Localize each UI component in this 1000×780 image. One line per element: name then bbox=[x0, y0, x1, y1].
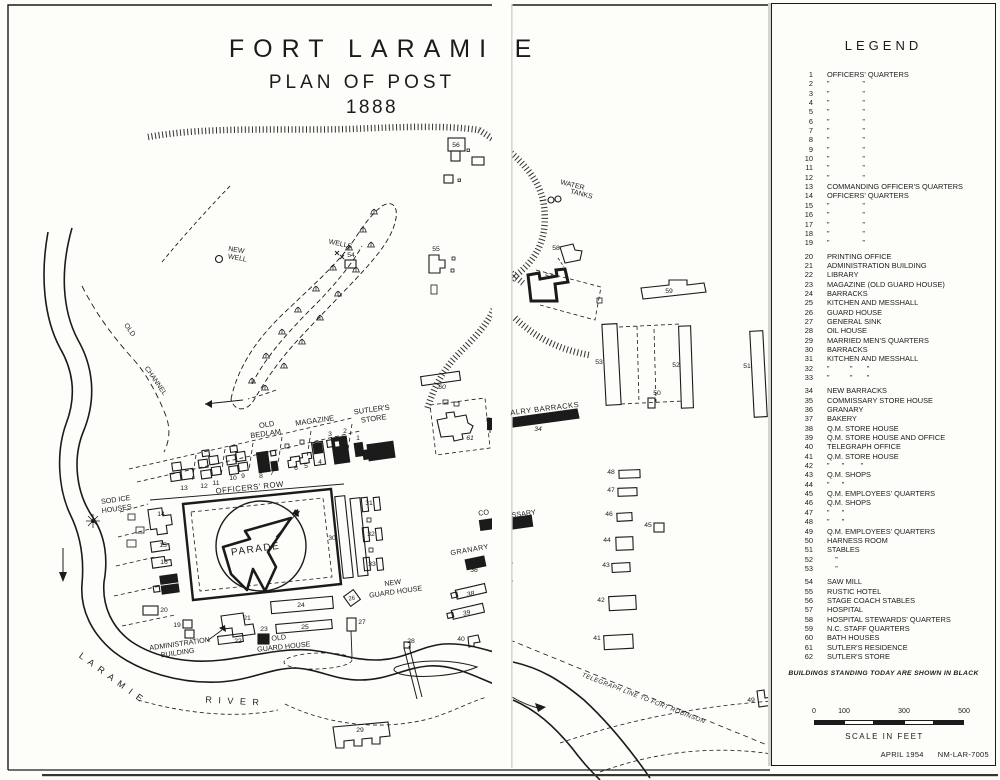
map-text-num-6: 6 bbox=[294, 465, 298, 472]
legend-row-label: ” bbox=[827, 555, 838, 564]
legend-row-label: SUTLER'S STORE bbox=[827, 652, 890, 661]
legend-row-number: 39 bbox=[794, 433, 813, 442]
legend-row-46: 46Q.M. SHOPS bbox=[794, 498, 995, 507]
legend-row-label: ” ” bbox=[827, 508, 844, 517]
legend-row-number: 52 bbox=[794, 555, 813, 564]
legend-row-32: 32” ” ” bbox=[794, 364, 995, 373]
map-text-num-1: 1 bbox=[356, 435, 360, 442]
legend-row-number: 38 bbox=[794, 424, 813, 433]
legend-row-51: 51STABLES bbox=[794, 545, 995, 554]
legend-sheet: LEGEND 1OFFICERS' QUARTERS2” ”3” ”4” ”5”… bbox=[771, 3, 996, 766]
scale-tick-0: 0 bbox=[812, 708, 816, 715]
legend-row-label: ” ” bbox=[827, 210, 865, 219]
legend-row-label: Q.M. STORE HOUSE bbox=[827, 452, 899, 461]
legend-row-number: 31 bbox=[794, 354, 813, 363]
legend-row-label: HOSPITAL bbox=[827, 605, 863, 614]
legend-row-label: KITCHEN AND MESSHALL bbox=[827, 298, 918, 307]
map-text-num-54: 54 bbox=[347, 252, 355, 259]
legend-row-36: 36GRANARY bbox=[794, 405, 995, 414]
legend-row-55: 55RUSTIC HOTEL bbox=[794, 587, 995, 596]
legend-row-number: 9 bbox=[794, 145, 813, 154]
legend-row-20: 20PRINTING OFFICE bbox=[794, 252, 995, 261]
legend-row-number: 20 bbox=[794, 252, 813, 261]
map-text-num-23: 23 bbox=[260, 626, 268, 633]
legend-row-label: ” ” bbox=[827, 238, 865, 247]
legend-row-number: 22 bbox=[794, 270, 813, 279]
legend-row-31: 31KITCHEN AND MESSHALL bbox=[794, 354, 995, 363]
legend-row-45: 45Q.M. EMPLOYEES' QUARTERS bbox=[794, 489, 995, 498]
legend-row-label: ” ” bbox=[827, 98, 865, 107]
legend-row-number: 36 bbox=[794, 405, 813, 414]
building-23-old-guard-house bbox=[258, 634, 269, 644]
map-text-num-2: 2 bbox=[343, 428, 347, 435]
map-text-num-28: 28 bbox=[407, 638, 415, 645]
legend-row-label: SAW MILL bbox=[827, 577, 862, 586]
legend-row-label: ” ” ” bbox=[827, 373, 869, 382]
legend-row-56: 56STAGE COACH STABLES bbox=[794, 596, 995, 605]
scale-segment bbox=[934, 720, 964, 725]
map-text-num-46: 46 bbox=[605, 511, 613, 518]
map-text-num-5: 5 bbox=[304, 463, 308, 470]
legend-row-label: ADMINISTRATION BUILDING bbox=[827, 261, 927, 270]
legend-row-2: 2” ” bbox=[794, 79, 995, 88]
legend-row-7: 7” ” bbox=[794, 126, 995, 135]
legend-row-label: N.C. STAFF QUARTERS bbox=[827, 624, 910, 633]
legend-row-number: 28 bbox=[794, 326, 813, 335]
legend-row-number: 42 bbox=[794, 461, 813, 470]
legend-row-12: 12” ” bbox=[794, 173, 995, 182]
legend-row-13: 13COMMANDING OFFICER'S QUARTERS bbox=[794, 182, 995, 191]
legend-row-number: 15 bbox=[794, 201, 813, 210]
legend-row-14: 14OFFICERS' QUARTERS bbox=[794, 191, 995, 200]
map-text-num-8: 8 bbox=[259, 473, 263, 480]
legend-row-53: 53 ” bbox=[794, 564, 995, 573]
legend-row-number: 58 bbox=[794, 615, 813, 624]
legend-row-38: 38Q.M. STORE HOUSE bbox=[794, 424, 995, 433]
legend-row-54: 54SAW MILL bbox=[794, 577, 995, 586]
legend-row-label: Q.M. STORE HOUSE AND OFFICE bbox=[827, 433, 945, 442]
building-1 bbox=[354, 443, 364, 457]
map-text-num-55: 55 bbox=[432, 246, 440, 253]
legend-row-label: HOSPITAL STEWARDS' QUARTERS bbox=[827, 615, 951, 624]
map-text-num-40: 40 bbox=[457, 636, 465, 643]
title-line-2: PLAN OF POST bbox=[269, 72, 455, 93]
map-text-num-7: 7 bbox=[270, 470, 274, 477]
legend-row-number: 54 bbox=[794, 577, 813, 586]
legend-row-label: MARRIED MEN'S QUARTERS bbox=[827, 336, 929, 345]
legend-row-62: 62SUTLER'S STORE bbox=[794, 652, 995, 661]
legend-row-number: 8 bbox=[794, 135, 813, 144]
legend-row-17: 17” ” bbox=[794, 220, 995, 229]
legend-row-label: OIL HOUSE bbox=[827, 326, 867, 335]
legend-row-label: ” ” bbox=[827, 229, 865, 238]
legend-row-number: 14 bbox=[794, 191, 813, 200]
legend-row-label: BARRACKS bbox=[827, 345, 868, 354]
legend-row-44: 44” ” bbox=[794, 480, 995, 489]
map-text-num-18: 18 bbox=[167, 587, 174, 593]
legend-row-number: 19 bbox=[794, 238, 813, 247]
legend-row-34: 34NEW BARRACKS bbox=[794, 386, 995, 395]
legend-row-label: MAGAZINE (OLD GUARD HOUSE) bbox=[827, 280, 945, 289]
legend-row-label: ” ” bbox=[827, 79, 865, 88]
legend-row-number: 30 bbox=[794, 345, 813, 354]
legend-row-number: 26 bbox=[794, 308, 813, 317]
map-text-num-32: 32 bbox=[367, 531, 375, 538]
map-text-num-36: 36 bbox=[470, 567, 478, 574]
map-text-num-24: 24 bbox=[297, 602, 305, 609]
legend-row-label: BARRACKS bbox=[827, 289, 868, 298]
scale-segment bbox=[874, 720, 904, 725]
legend-row-number: 13 bbox=[794, 182, 813, 191]
legend-row-label: ” ” ” bbox=[827, 461, 863, 470]
legend-row-27: 27GENERAL SINK bbox=[794, 317, 995, 326]
legend-row-number: 32 bbox=[794, 364, 813, 373]
legend-row-1: 1OFFICERS' QUARTERS bbox=[794, 70, 995, 79]
legend-row-label: ” ” bbox=[827, 89, 865, 98]
scan-seam bbox=[492, 4, 512, 768]
legend-row-number: 33 bbox=[794, 373, 813, 382]
map-text-num-16: 16 bbox=[160, 559, 168, 566]
legend-row-22: 22LIBRARY bbox=[794, 270, 995, 279]
legend-row-label: ” bbox=[827, 564, 838, 573]
legend-row-label: SUTLER'S RESIDENCE bbox=[827, 643, 908, 652]
legend-row-28: 28OIL HOUSE bbox=[794, 326, 995, 335]
legend-row-label: ” ” bbox=[827, 145, 865, 154]
legend-row-number: 43 bbox=[794, 470, 813, 479]
legend-row-number: 25 bbox=[794, 298, 813, 307]
legend-row-number: 48 bbox=[794, 517, 813, 526]
legend-row-label: ” ” bbox=[827, 107, 865, 116]
legend-row-label: ” ” bbox=[827, 117, 865, 126]
map-text-num-4: 4 bbox=[318, 459, 322, 466]
legend-row-label: ” ” bbox=[827, 126, 865, 135]
scan-seam-shadow bbox=[511, 4, 513, 768]
legend-row-43: 43Q.M. SHOPS bbox=[794, 470, 995, 479]
legend-row-9: 9” ” bbox=[794, 145, 995, 154]
legend-row-label: PRINTING OFFICE bbox=[827, 252, 891, 261]
scale-tick-100: 100 bbox=[838, 708, 850, 715]
map-text-num-25: 25 bbox=[301, 624, 309, 631]
map-text-num-50: 50 bbox=[653, 390, 661, 397]
legend-row-label: TELEGRAPH OFFICE bbox=[827, 442, 901, 451]
legend-row-number: 35 bbox=[794, 396, 813, 405]
map-text-num-42: 42 bbox=[597, 597, 605, 604]
legend-row-number: 57 bbox=[794, 605, 813, 614]
legend-row-label: BAKERY bbox=[827, 414, 857, 423]
legend-row-number: 12 bbox=[794, 173, 813, 182]
legend-row-label: HARNESS ROOM bbox=[827, 536, 888, 545]
legend-row-label: Q.M. SHOPS bbox=[827, 498, 871, 507]
legend-row-number: 37 bbox=[794, 414, 813, 423]
map-text-num-57: 57 bbox=[545, 273, 553, 280]
map-text-num-49: 49 bbox=[747, 697, 755, 704]
title-line-3: 1888 bbox=[346, 97, 398, 118]
legend-row-6: 6” ” bbox=[794, 117, 995, 126]
map-text-num-56: 56 bbox=[452, 142, 460, 149]
map-text-num-22: 22 bbox=[234, 638, 242, 645]
title-line-1-cut-e: E bbox=[515, 35, 532, 63]
map-text-num-52: 52 bbox=[672, 362, 680, 369]
scale-caption: SCALE IN FEET bbox=[772, 732, 997, 741]
legend-row-label: ” ” bbox=[827, 154, 865, 163]
legend-row-label: Q.M. EMPLOYEES' QUARTERS bbox=[827, 489, 935, 498]
map-text-num-29: 29 bbox=[356, 727, 364, 734]
map-text-num-34: 34 bbox=[534, 426, 542, 433]
scale-segment bbox=[904, 720, 934, 725]
legend-row-41: 41Q.M. STORE HOUSE bbox=[794, 452, 995, 461]
legend-row-label: COMMISSARY STORE HOUSE bbox=[827, 396, 933, 405]
map-text-num-15: 15 bbox=[159, 542, 167, 549]
legend-row-number: 10 bbox=[794, 154, 813, 163]
legend-row-21: 21ADMINISTRATION BUILDING bbox=[794, 261, 995, 270]
map-text-num-48: 48 bbox=[607, 469, 615, 476]
scale-tick-500: 500 bbox=[958, 708, 970, 715]
legend-row-number: 56 bbox=[794, 596, 813, 605]
map-text-num-51: 51 bbox=[743, 363, 751, 370]
map-text-num-20: 20 bbox=[160, 607, 168, 614]
legend-row-61: 61SUTLER'S RESIDENCE bbox=[794, 643, 995, 652]
legend-row-26: 26GUARD HOUSE bbox=[794, 308, 995, 317]
legend-row-35: 35COMMISSARY STORE HOUSE bbox=[794, 396, 995, 405]
legend-row-number: 51 bbox=[794, 545, 813, 554]
legend-row-number: 55 bbox=[794, 587, 813, 596]
legend-row-number: 6 bbox=[794, 117, 813, 126]
legend-row-number: 53 bbox=[794, 564, 813, 573]
legend-row-37: 37BAKERY bbox=[794, 414, 995, 423]
legend-row-number: 11 bbox=[794, 163, 813, 172]
legend-row-label: LIBRARY bbox=[827, 270, 859, 279]
legend-row-39: 39Q.M. STORE HOUSE AND OFFICE bbox=[794, 433, 995, 442]
legend-row-label: ” ” bbox=[827, 220, 865, 229]
legend-row-11: 11” ” bbox=[794, 163, 995, 172]
legend-row-57: 57HOSPITAL bbox=[794, 605, 995, 614]
legend-row-label: RUSTIC HOTEL bbox=[827, 587, 881, 596]
legend-row-33: 33” ” ” bbox=[794, 373, 995, 382]
map-text-num-12: 12 bbox=[200, 483, 208, 490]
legend-row-number: 47 bbox=[794, 508, 813, 517]
map-text-num-19: 19 bbox=[173, 622, 181, 629]
map-text-num-47: 47 bbox=[607, 487, 615, 494]
map-text-num-60: 60 bbox=[438, 384, 446, 391]
legend-row-15: 15” ” bbox=[794, 201, 995, 210]
map-text-num-10: 10 bbox=[229, 475, 237, 482]
legend-row-24: 24BARRACKS bbox=[794, 289, 995, 298]
legend-row-label: ” ” bbox=[827, 163, 865, 172]
map-text-num-61: 61 bbox=[466, 435, 474, 442]
legend-row-number: 44 bbox=[794, 480, 813, 489]
legend-row-18: 18” ” bbox=[794, 229, 995, 238]
map-text-num-33: 33 bbox=[368, 561, 376, 568]
legend-row-4: 4” ” bbox=[794, 98, 995, 107]
legend-row-number: 49 bbox=[794, 527, 813, 536]
map-text-num-41: 41 bbox=[593, 635, 601, 642]
legend-row-number: 1 bbox=[794, 70, 813, 79]
map-text-num-31: 31 bbox=[365, 500, 373, 507]
legend-row-number: 18 bbox=[794, 229, 813, 238]
legend-row-label: KITCHEN AND MESSHALL bbox=[827, 354, 918, 363]
legend-row-number: 46 bbox=[794, 498, 813, 507]
map-text-num-30: 30 bbox=[328, 535, 336, 542]
legend-row-label: ” ” bbox=[827, 201, 865, 210]
legend-note: BUILDINGS STANDING TODAY ARE SHOWN IN BL… bbox=[772, 670, 995, 677]
map-text-num-21: 21 bbox=[243, 615, 251, 622]
legend-row-10: 10” ” bbox=[794, 154, 995, 163]
sun-icon bbox=[86, 514, 100, 528]
legend-row-59: 59N.C. STAFF QUARTERS bbox=[794, 624, 995, 633]
legend-row-number: 21 bbox=[794, 261, 813, 270]
legend-row-label: GRANARY bbox=[827, 405, 863, 414]
legend-row-60: 60BATH HOUSES bbox=[794, 633, 995, 642]
legend-row-48: 48” ” bbox=[794, 517, 995, 526]
map-text-commissary-left: CO bbox=[478, 507, 490, 517]
map-text-num-43: 43 bbox=[602, 562, 610, 569]
scan-bottom-edge bbox=[42, 774, 998, 776]
legend-row-30: 30BARRACKS bbox=[794, 345, 995, 354]
legend-row-47: 47” ” bbox=[794, 508, 995, 517]
legend-row-40: 40TELEGRAPH OFFICE bbox=[794, 442, 995, 451]
map-text-num-9: 9 bbox=[241, 473, 245, 480]
legend-rows: 1OFFICERS' QUARTERS2” ”3” ”4” ”5” ”6” ”7… bbox=[794, 70, 995, 661]
legend-row-label: STAGE COACH STABLES bbox=[827, 596, 915, 605]
map-text-num-27: 27 bbox=[358, 619, 366, 626]
legend-row-8: 8” ” bbox=[794, 135, 995, 144]
legend-row-number: 4 bbox=[794, 98, 813, 107]
legend-row-49: 49Q.M. EMPLOYEES' QUARTERS bbox=[794, 527, 995, 536]
map-text-num-13: 13 bbox=[180, 485, 188, 492]
legend-row-number: 62 bbox=[794, 652, 813, 661]
building-2 bbox=[331, 436, 349, 464]
legend-row-label: STABLES bbox=[827, 545, 860, 554]
legend-row-number: 29 bbox=[794, 336, 813, 345]
map-text-num-59: 59 bbox=[665, 288, 673, 295]
scale-bar: 0 100 300 500 SCALE IN FEET bbox=[772, 708, 997, 754]
map-text-num-44: 44 bbox=[603, 537, 611, 544]
legend-row-number: 24 bbox=[794, 289, 813, 298]
legend-row-number: 34 bbox=[794, 386, 813, 395]
legend-row-16: 16” ” bbox=[794, 210, 995, 219]
legend-row-label: Q.M. EMPLOYEES' QUARTERS bbox=[827, 527, 935, 536]
legend-row-52: 52 ” bbox=[794, 555, 995, 564]
legend-row-number: 50 bbox=[794, 536, 813, 545]
legend-row-number: 40 bbox=[794, 442, 813, 451]
map-text-num-11: 11 bbox=[212, 480, 219, 487]
legend-heading: LEGEND bbox=[772, 38, 995, 53]
legend-row-label: ” ” bbox=[827, 135, 865, 144]
legend-row-25: 25KITCHEN AND MESSHALL bbox=[794, 298, 995, 307]
map-text-num-58: 58 bbox=[552, 245, 560, 252]
legend-row-label: BATH HOUSES bbox=[827, 633, 879, 642]
legend-row-label: NEW BARRACKS bbox=[827, 386, 887, 395]
map-text-num-17: 17 bbox=[167, 579, 174, 585]
legend-row-label: ” ” bbox=[827, 173, 865, 182]
legend-row-number: 16 bbox=[794, 210, 813, 219]
legend-row-number: 59 bbox=[794, 624, 813, 633]
legend-row-label: COMMANDING OFFICER'S QUARTERS bbox=[827, 182, 963, 191]
legend-row-58: 58HOSPITAL STEWARDS' QUARTERS bbox=[794, 615, 995, 624]
scale-segment bbox=[814, 720, 844, 725]
legend-row-5: 5” ” bbox=[794, 107, 995, 116]
legend-row-label: ” ” bbox=[827, 480, 844, 489]
legend-row-label: ” ” ” bbox=[827, 364, 869, 373]
map-text-num-53: 53 bbox=[595, 359, 603, 366]
scale-segment bbox=[844, 720, 874, 725]
legend-row-label: OFFICERS' QUARTERS bbox=[827, 70, 909, 79]
fort-laramie-map-scan: { "colors": { "ink": "#1b1b1b", "paper":… bbox=[0, 0, 1000, 780]
legend-row-number: 17 bbox=[794, 220, 813, 229]
legend-row-23: 23MAGAZINE (OLD GUARD HOUSE) bbox=[794, 280, 995, 289]
legend-row-label: OFFICERS' QUARTERS bbox=[827, 191, 909, 200]
legend-row-number: 60 bbox=[794, 633, 813, 642]
legend-row-number: 2 bbox=[794, 79, 813, 88]
map-text-num-14: 14 bbox=[157, 511, 165, 518]
legend-row-number: 3 bbox=[794, 89, 813, 98]
stamp-code: NM-LAR-7005 bbox=[938, 750, 989, 759]
legend-row-label: ” ” bbox=[827, 517, 844, 526]
legend-row-number: 27 bbox=[794, 317, 813, 326]
legend-row-number: 41 bbox=[794, 452, 813, 461]
drawing-stamp: APRIL 1954NM-LAR-7005 bbox=[867, 750, 989, 759]
legend-row-number: 45 bbox=[794, 489, 813, 498]
legend-row-number: 5 bbox=[794, 107, 813, 116]
legend-row-19: 19” ” bbox=[794, 238, 995, 247]
legend-row-label: Q.M. STORE HOUSE bbox=[827, 424, 899, 433]
legend-row-number: 7 bbox=[794, 126, 813, 135]
legend-row-number: 23 bbox=[794, 280, 813, 289]
stamp-date: APRIL 1954 bbox=[881, 750, 924, 759]
map-text-num-45: 45 bbox=[644, 522, 652, 529]
map-text-num-3: 3 bbox=[328, 431, 332, 438]
legend-row-number: 61 bbox=[794, 643, 813, 652]
title-line-1: FORT LARAMI bbox=[229, 35, 495, 63]
legend-row-label: GENERAL SINK bbox=[827, 317, 881, 326]
legend-row-29: 29MARRIED MEN'S QUARTERS bbox=[794, 336, 995, 345]
legend-row-50: 50HARNESS ROOM bbox=[794, 536, 995, 545]
legend-row-label: GUARD HOUSE bbox=[827, 308, 882, 317]
legend-row-42: 42” ” ” bbox=[794, 461, 995, 470]
legend-row-3: 3” ” bbox=[794, 89, 995, 98]
scale-tick-300: 300 bbox=[898, 708, 910, 715]
legend-row-label: Q.M. SHOPS bbox=[827, 470, 871, 479]
